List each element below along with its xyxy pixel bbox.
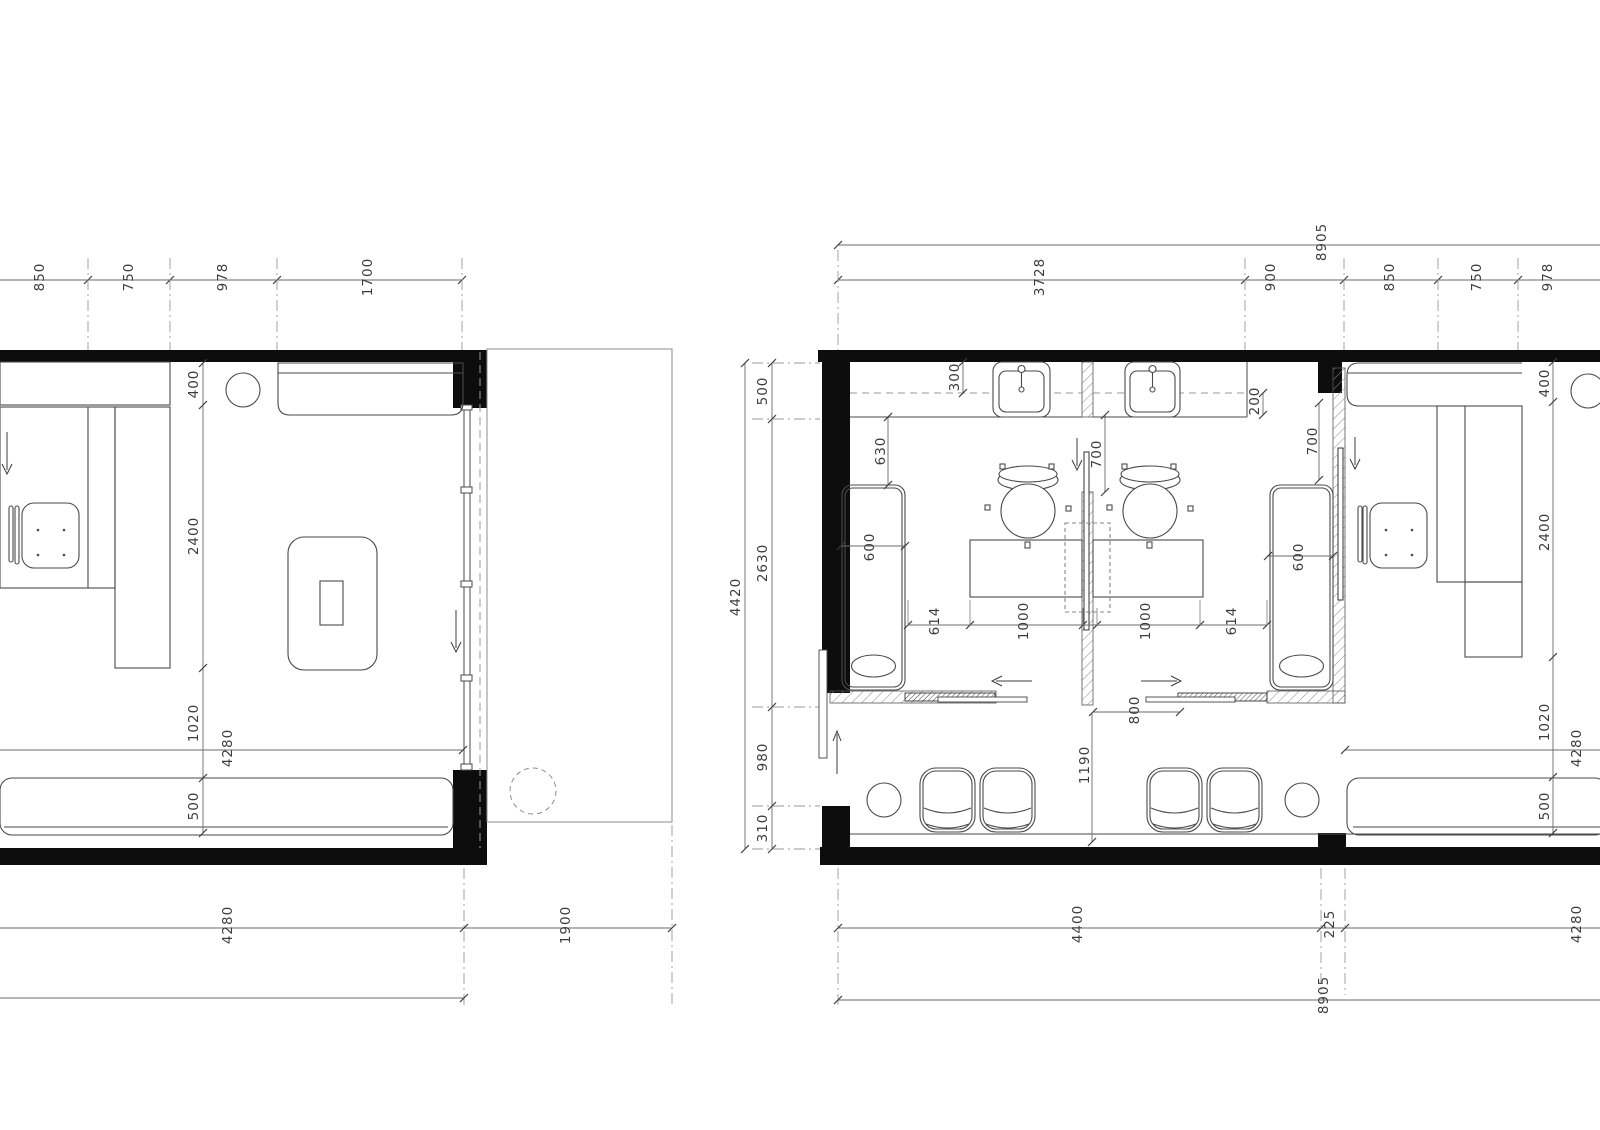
terrace-dashed-circle xyxy=(510,768,556,814)
coffee-table xyxy=(288,537,377,670)
center-partition-top xyxy=(1082,362,1093,417)
right-room-bottom-wall xyxy=(1267,691,1345,703)
right-unit-desk xyxy=(1437,406,1522,657)
left-room-door-leaf xyxy=(938,697,1027,702)
styling-chair-right xyxy=(1107,464,1193,548)
side-table-left xyxy=(867,783,901,817)
center-passage-arrow xyxy=(1072,438,1082,470)
sliding-door-leaves xyxy=(819,650,1235,758)
right-unit-bench xyxy=(1347,778,1600,835)
left-wall xyxy=(822,362,850,693)
lounger-left xyxy=(842,485,905,690)
wall-corner-top-right xyxy=(453,350,487,408)
left-plan xyxy=(0,258,676,1005)
stool-circle xyxy=(226,373,260,407)
door-swing-arrow-left xyxy=(2,432,12,474)
right-unit-cabinet xyxy=(1347,363,1522,406)
sink-left xyxy=(993,362,1050,417)
right-room-mirror xyxy=(1338,448,1343,600)
styling-chair-left xyxy=(985,464,1071,548)
right-room-door-leaf xyxy=(1146,697,1235,702)
wall-shelf xyxy=(0,362,170,405)
right-plan xyxy=(741,241,1600,1008)
sink-right xyxy=(1125,362,1180,417)
door-swing-arrow-window xyxy=(451,610,461,652)
bottom-pier xyxy=(1318,833,1346,847)
right-room-passage-arrow xyxy=(1350,437,1360,469)
left-plan-dimensions xyxy=(0,258,676,1005)
office-chair xyxy=(9,503,79,568)
entry-door-leaf xyxy=(819,650,827,758)
side-cabinet xyxy=(278,363,463,415)
waiting-chairs xyxy=(920,768,1262,832)
center-mirror xyxy=(1084,452,1089,630)
right-unit-stool-circle xyxy=(1571,374,1600,408)
floor-plan-canvas xyxy=(0,0,1600,1130)
left-room-door-arrow xyxy=(992,676,1032,686)
extension-lines-dashdot xyxy=(88,258,672,1005)
sofa-bench xyxy=(0,778,453,835)
right-unit-office-chair xyxy=(1358,503,1427,568)
right-room-door-arrow xyxy=(1141,676,1181,686)
entry-arrow-up xyxy=(833,731,841,774)
bottom-wall xyxy=(820,847,1600,865)
lounger-right xyxy=(1270,485,1333,690)
terrace-outline xyxy=(487,349,672,822)
left-plan-walls xyxy=(0,350,487,865)
floor-plan-drawing: 8507509781700400240010205004280428019008… xyxy=(0,0,1600,1130)
side-table-right xyxy=(1285,783,1319,817)
